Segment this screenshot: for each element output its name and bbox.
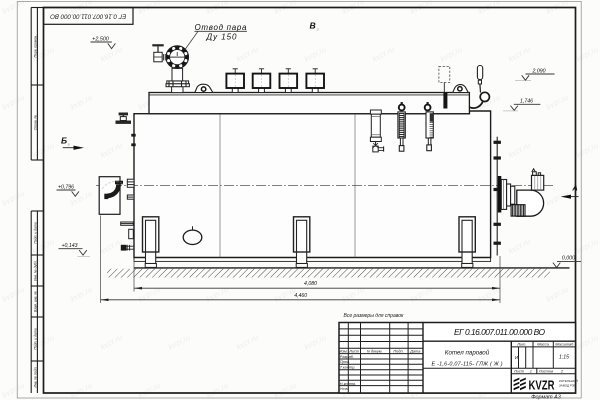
svg-text:1:15: 1:15	[559, 355, 569, 361]
svg-text:Пров.: Пров.	[340, 359, 350, 364]
svg-text:N докум.: N докум.	[367, 348, 383, 353]
svg-text:Б: Б	[61, 136, 67, 146]
svg-text:КОТЕЛЬНЫЙ: КОТЕЛЬНЫЙ	[559, 379, 578, 383]
svg-text:Перв. примен.: Перв. примен.	[33, 35, 37, 58]
svg-text:+0,796: +0,796	[58, 184, 74, 190]
svg-text:Взам. инв. №: Взам. инв. №	[33, 291, 37, 312]
svg-text:ЕГ 0.16.007.011.00.000 ВО: ЕГ 0.16.007.011.00.000 ВО	[50, 12, 126, 19]
svg-text:В: В	[310, 21, 316, 31]
svg-text:А: А	[571, 184, 577, 193]
svg-text:Е -1,6-0,07-115- ГЛЖ ( Ж ): Е -1,6-0,07-115- ГЛЖ ( Ж )	[432, 361, 503, 367]
svg-text:Ду 150: Ду 150	[206, 33, 238, 42]
svg-text:Н.контр.: Н.контр.	[340, 381, 356, 386]
svg-text:Листов: Листов	[538, 368, 553, 373]
svg-text:Подп. и дата: Подп. и дата	[33, 328, 37, 349]
svg-text:Разраб.: Разраб.	[340, 354, 354, 359]
svg-text:4,460: 4,460	[294, 293, 307, 299]
svg-text:Лит.: Лит.	[516, 342, 526, 347]
svg-text:Подп.: Подп.	[393, 348, 403, 353]
svg-text:Лист: Лист	[513, 368, 525, 373]
svg-text:Инв. № дубл.: Инв. № дубл.	[33, 260, 37, 281]
svg-text:Утв.: Утв.	[340, 386, 349, 391]
svg-text:2,090: 2,090	[532, 68, 546, 74]
svg-text:Масса: Масса	[537, 342, 549, 347]
svg-text:Т.контр.: Т.контр.	[340, 365, 356, 370]
svg-text:1,746: 1,746	[520, 99, 533, 105]
svg-text:4,080: 4,080	[304, 281, 317, 287]
svg-text:Отвод пара: Отвод пара	[195, 23, 248, 32]
svg-text:Изм.: Изм.	[339, 348, 347, 353]
svg-text:Котел паровой: Котел паровой	[445, 350, 490, 357]
svg-text:KVZR: KVZR	[529, 378, 555, 392]
svg-text:₁₎: ₁₎	[316, 26, 319, 31]
svg-text:Инв. № подл.: Инв. № подл.	[33, 366, 37, 387]
svg-text:Лист: Лист	[348, 348, 360, 353]
svg-text:Справ. №: Справ. №	[33, 114, 37, 130]
svg-text:+0,143: +0,143	[61, 243, 77, 249]
svg-text:+2,500: +2,500	[92, 36, 109, 42]
svg-text:0,000: 0,000	[562, 256, 575, 262]
svg-text:Формат А3: Формат А3	[531, 395, 561, 400]
svg-text:Масштаб: Масштаб	[555, 342, 574, 347]
svg-text:Все размеры для справок: Все размеры для справок	[344, 313, 405, 319]
svg-text:Дата: Дата	[409, 348, 421, 353]
svg-text:₁₎: ₁₎	[67, 141, 70, 146]
svg-text:ЗАВОД РЭП: ЗАВОД РЭП	[559, 384, 576, 388]
svg-text:ЕГ 0.16.007.011.00.000 ВО: ЕГ 0.16.007.011.00.000 ВО	[454, 327, 545, 337]
svg-text:Подп. и дата: Подп. и дата	[33, 222, 37, 243]
svg-text:1: 1	[530, 368, 532, 373]
